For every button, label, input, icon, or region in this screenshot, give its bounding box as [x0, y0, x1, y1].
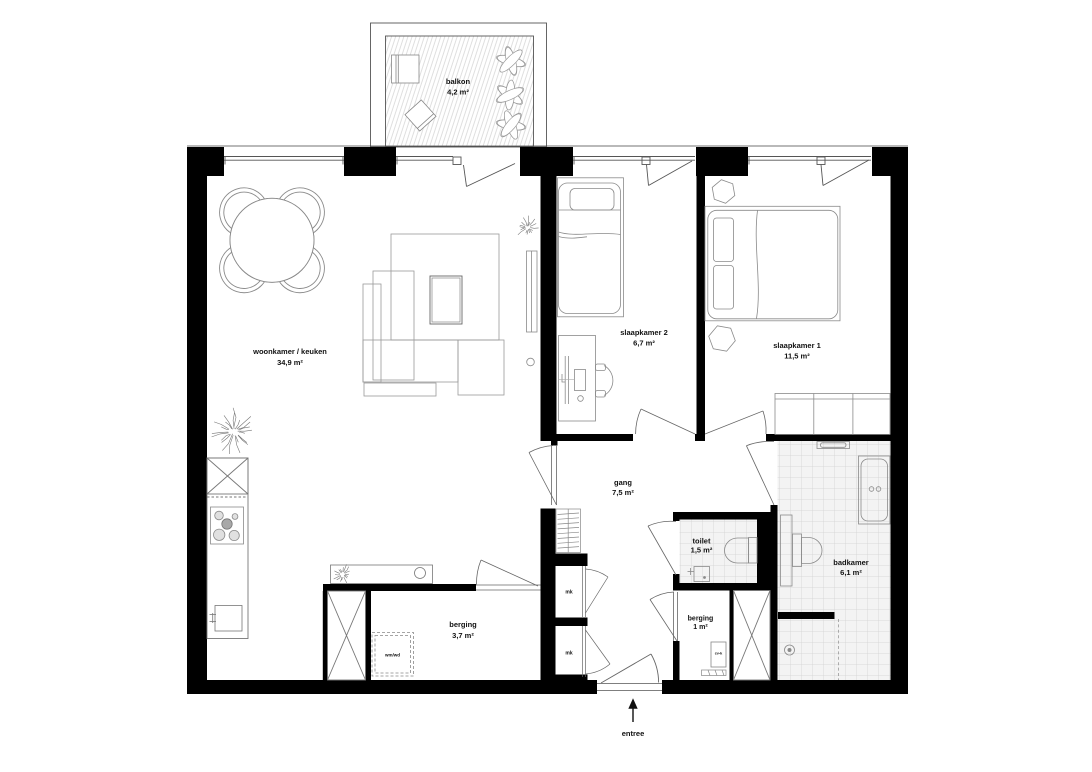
svg-text:6,7 m²: 6,7 m² — [633, 339, 655, 348]
svg-text:1 m²: 1 m² — [693, 624, 708, 631]
svg-text:slaapkamer 2: slaapkamer 2 — [620, 328, 668, 337]
svg-text:entree: entree — [622, 729, 645, 738]
svg-text:7,5 m²: 7,5 m² — [612, 488, 634, 497]
svg-text:mk: mk — [565, 590, 572, 596]
svg-text:cv-k: cv-k — [715, 652, 723, 656]
svg-text:gang: gang — [614, 478, 632, 487]
svg-text:34,9 m²: 34,9 m² — [277, 358, 303, 367]
svg-text:badkamer: badkamer — [833, 558, 869, 567]
svg-text:woonkamer / keuken: woonkamer / keuken — [252, 347, 327, 356]
svg-text:1,5 m²: 1,5 m² — [691, 546, 713, 555]
svg-text:4,2 m²: 4,2 m² — [447, 88, 469, 97]
svg-text:6,1 m²: 6,1 m² — [840, 568, 862, 577]
svg-text:3,7 m²: 3,7 m² — [452, 631, 474, 640]
svg-text:11,5 m²: 11,5 m² — [784, 352, 810, 361]
svg-text:slaapkamer 1: slaapkamer 1 — [773, 341, 821, 350]
svg-text:berging: berging — [688, 616, 714, 623]
svg-text:toilet: toilet — [693, 537, 711, 546]
svg-text:mk: mk — [565, 651, 572, 657]
svg-text:berging: berging — [449, 620, 477, 629]
svg-text:balkon: balkon — [446, 77, 471, 86]
svg-text:wm/wd: wm/wd — [384, 653, 400, 658]
